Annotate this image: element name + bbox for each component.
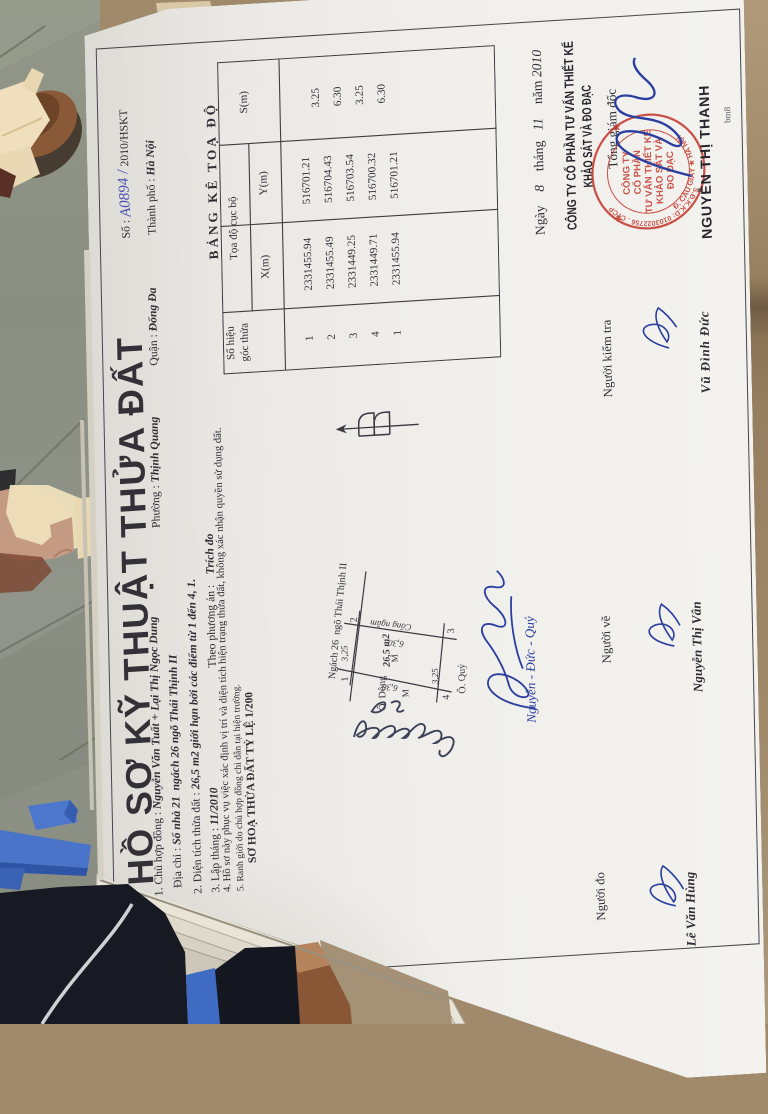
- svg-text:Ô. Quý: Ô. Quý: [456, 663, 469, 694]
- svg-text:26,5 m2: 26,5 m2: [381, 633, 393, 668]
- svg-text:2: 2: [349, 617, 360, 623]
- svg-text:M: M: [390, 654, 400, 663]
- svg-text:Nguyễn - Đức - Quý: Nguyễn - Đức - Quý: [522, 616, 539, 725]
- svg-text:1: 1: [340, 676, 351, 682]
- svg-text:3: 3: [446, 628, 457, 634]
- svg-text:Cổng ngầm: Cổng ngầm: [369, 618, 412, 633]
- svg-text:3,25: 3,25: [430, 667, 440, 685]
- svg-text:★: ★: [613, 213, 623, 224]
